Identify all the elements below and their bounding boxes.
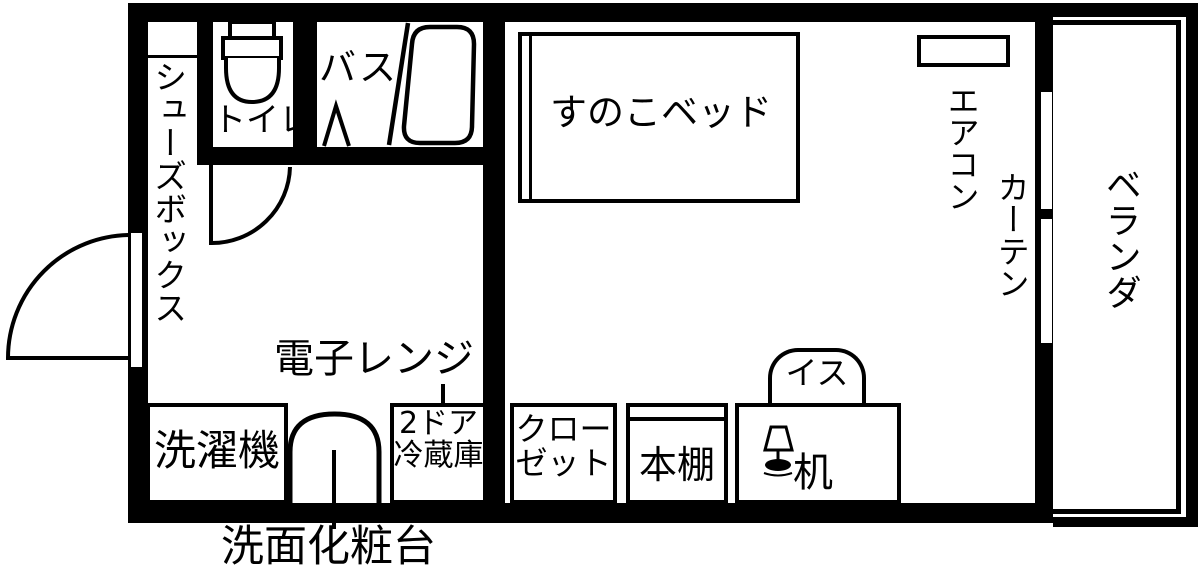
wall-below-toilet-bath — [197, 147, 505, 165]
wall-shoesbox-toilet — [197, 3, 213, 165]
floor-plan: シューズボックス トイレ バス すのこベッド エアコン カーテン ベランダ 電子… — [0, 0, 1200, 577]
door-swing-arc-entrance — [8, 235, 131, 358]
balcony-wall-right — [1186, 3, 1198, 527]
aircon-outline — [917, 35, 1010, 67]
vanity-label: 洗面化粧台 — [221, 525, 436, 570]
closet-label: クロー ゼット — [510, 413, 617, 480]
window-pane-lower — [1041, 219, 1052, 343]
bath-door-caret — [324, 106, 349, 146]
fridge-label-line2: 冷蔵庫 — [390, 440, 487, 472]
bathtub-icon — [404, 27, 474, 143]
balcony-inner-line-right — [1176, 20, 1181, 514]
window-pane-upper — [1041, 92, 1052, 209]
desk-label: 机 — [793, 452, 833, 494]
shoesbox-shelf-line — [148, 55, 197, 58]
aircon-label: エアコン — [944, 84, 978, 234]
balcony-wall-bottom — [1053, 517, 1198, 527]
balcony-wall-top — [1053, 3, 1198, 17]
washbasin-arch — [290, 414, 379, 503]
toilet-icon — [223, 22, 281, 102]
bookshelf-shelf-line — [630, 417, 724, 421]
toilet-label: トイレ — [213, 103, 312, 138]
washing-machine-label: 洗濯機 — [146, 429, 288, 473]
balcony-inner-line-bottom — [1053, 509, 1181, 514]
balcony-inner-line-top — [1053, 20, 1181, 25]
entrance-door-leaf — [131, 233, 142, 367]
bookshelf-label: 本棚 — [626, 446, 728, 486]
bath-label: バス — [319, 49, 399, 88]
bed-label: すのこベッド — [530, 94, 792, 133]
fridge-label-line1: 2ドア — [390, 408, 487, 440]
closet-label-line1: クロー — [510, 413, 617, 447]
curtain-label: カーテン — [994, 171, 1028, 329]
door-swing-arc-toilet — [211, 165, 290, 243]
wall-bottom — [128, 503, 1053, 523]
fridge-label: 2ドア 冷蔵庫 — [390, 408, 487, 471]
chair-label: イス — [768, 357, 866, 391]
veranda-label: ベランダ — [1101, 166, 1139, 334]
shoes-box-label: シューズボックス — [150, 60, 185, 350]
wall-top — [128, 3, 1053, 22]
closet-label-line2: ゼット — [510, 447, 617, 481]
microwave-label: 電子レンジ — [274, 338, 474, 380]
